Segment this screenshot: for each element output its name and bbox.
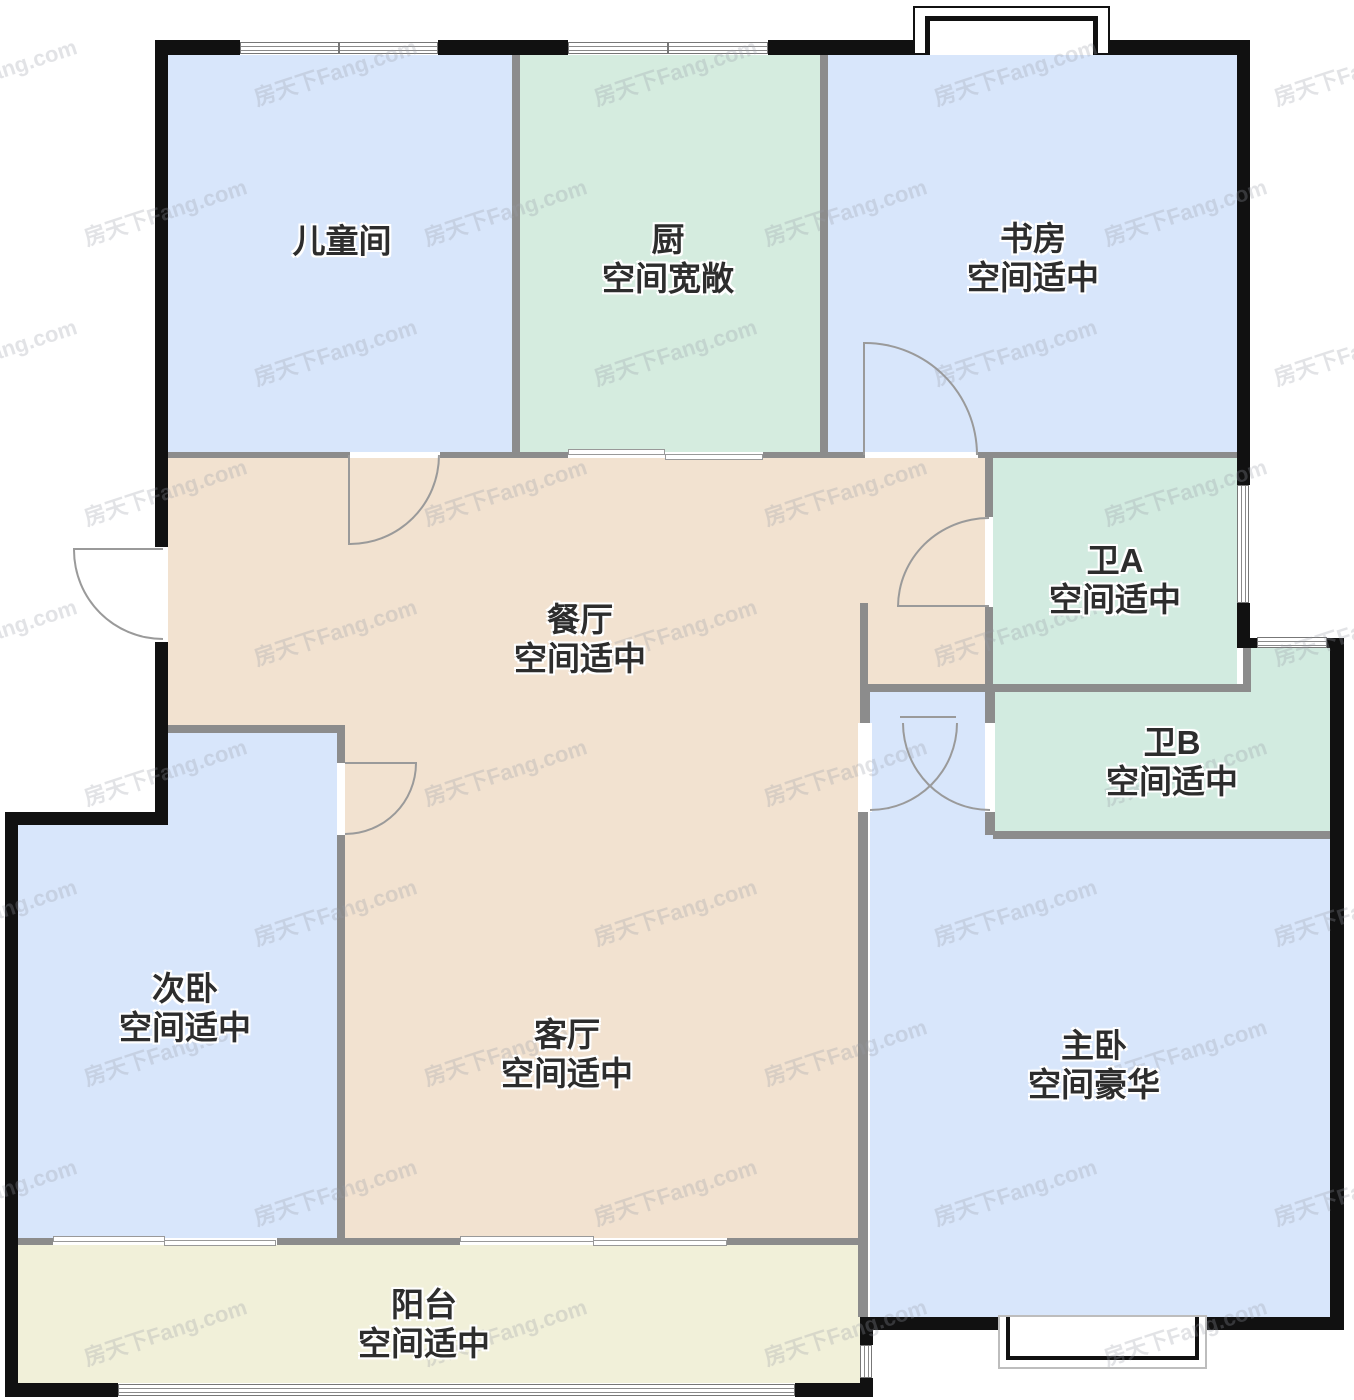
window-balcony-bottom	[118, 1384, 795, 1396]
outer-wall-master-bottom-2	[1203, 1317, 1344, 1330]
outer-wall-bottom-left	[5, 1383, 118, 1397]
room-name: 儿童间	[293, 222, 392, 261]
watermark-text: 房天下Fang.com	[0, 310, 81, 393]
outer-wall-right-lower	[1330, 648, 1344, 1330]
room-desc: 空间适中	[967, 258, 1099, 297]
window-tick-2	[667, 42, 669, 54]
room-desc: 空间适中	[1049, 580, 1181, 619]
room-name: 主卧	[1028, 1026, 1160, 1065]
outer-wall-step-right-2	[1327, 638, 1344, 648]
label-balcony: 阳台 空间适中	[358, 1285, 490, 1363]
wall-kitchen-right	[820, 55, 828, 452]
window-balcony-right	[860, 1345, 872, 1378]
watermark-text: 房天下Fang.com	[0, 30, 81, 113]
sliding-panel-second-balcony-2	[164, 1240, 276, 1246]
door-gap-second	[337, 763, 345, 835]
outer-wall-balcony-right-2	[860, 1378, 873, 1397]
wall-bath-b-step-left	[1243, 648, 1251, 692]
room-desc: 空间适中	[358, 1324, 490, 1363]
label-master-bedroom: 主卧 空间豪华	[1028, 1026, 1160, 1104]
floor-plan: 儿童间 厨 空间宽敞 书房 空间适中 餐厅 空间适中 卫A 空间适中 卫B 空间…	[0, 0, 1354, 1400]
label-dining: 餐厅 空间适中	[514, 600, 646, 678]
window-tick-1	[338, 42, 340, 54]
room-bath-b-step	[1243, 648, 1337, 692]
outer-wall-left-upper	[155, 40, 168, 547]
watermark-text: 房天下Fang.com	[0, 590, 81, 673]
room-desc: 空间宽敞	[602, 259, 734, 298]
wall-second-top	[162, 725, 345, 733]
exterior-cover	[0, 725, 155, 812]
window-bath-b-step	[1257, 637, 1327, 648]
wall-corridor-left-upper	[860, 692, 870, 723]
flue-box-inner	[925, 16, 1098, 55]
room-name: 厨	[602, 220, 734, 259]
label-bath-a: 卫A 空间适中	[1049, 541, 1181, 619]
room-desc: 空间适中	[501, 1054, 633, 1093]
sliding-panel-kitchen-1	[568, 449, 665, 455]
door-leaf-study	[863, 342, 865, 455]
room-desc: 空间适中	[1106, 762, 1238, 801]
watermark-text: 房天下Fang.com	[1269, 310, 1354, 393]
label-bath-b: 卫B 空间适中	[1106, 723, 1238, 801]
room-name: 卫B	[1106, 723, 1238, 762]
wall-kitchen-left	[512, 55, 520, 452]
outer-wall-right-upper	[1237, 40, 1250, 485]
door-leaf-second	[345, 762, 417, 764]
outer-wall-top-3	[768, 40, 915, 55]
room-dining	[168, 458, 862, 725]
window-right-bath-a	[1237, 485, 1249, 603]
outer-wall-left-mid	[155, 642, 168, 825]
outer-wall-left-step	[5, 812, 168, 825]
wall-bath-b-bottom	[993, 831, 1337, 839]
sliding-panel-living-balcony-2	[593, 1240, 727, 1246]
door-leaf-entry	[73, 548, 163, 550]
wall-bath-a-bottom	[860, 684, 1243, 692]
outer-wall-step-right-1	[1243, 638, 1257, 648]
door-arc-entry	[73, 550, 163, 640]
label-kitchen: 厨 空间宽敞	[602, 220, 734, 298]
sliding-panel-second-balcony-1	[53, 1236, 165, 1242]
wall-dining-stub	[860, 603, 868, 687]
bay-window-inner	[1006, 1317, 1199, 1360]
label-study: 书房 空间适中	[967, 219, 1099, 297]
room-desc: 空间适中	[119, 1008, 251, 1047]
label-second-bedroom: 次卧 空间适中	[119, 969, 251, 1047]
sliding-panel-living-balcony-1	[460, 1236, 594, 1242]
door-leaf-corridor	[900, 716, 956, 718]
room-name: 卫A	[1049, 541, 1181, 580]
outer-wall-top-4	[1108, 40, 1250, 55]
outer-wall-master-bottom-1	[862, 1317, 1005, 1330]
watermark-text: 房天下Fang.com	[1269, 30, 1354, 113]
room-name: 餐厅	[514, 600, 646, 639]
room-living	[345, 725, 862, 1238]
room-name: 客厅	[501, 1015, 633, 1054]
label-living: 客厅 空间适中	[501, 1015, 633, 1093]
outer-wall-left-lower	[5, 812, 18, 1397]
sliding-panel-kitchen-2	[665, 454, 763, 460]
room-desc: 空间适中	[514, 639, 646, 678]
room-name: 阳台	[358, 1285, 490, 1324]
room-name: 次卧	[119, 969, 251, 1008]
door-leaf-children	[348, 455, 350, 545]
outer-wall-top-2	[438, 40, 568, 55]
door-leaf-bath-a	[897, 605, 989, 607]
room-name: 书房	[967, 219, 1099, 258]
room-desc: 空间豪华	[1028, 1065, 1160, 1104]
label-children-room: 儿童间	[293, 222, 392, 261]
